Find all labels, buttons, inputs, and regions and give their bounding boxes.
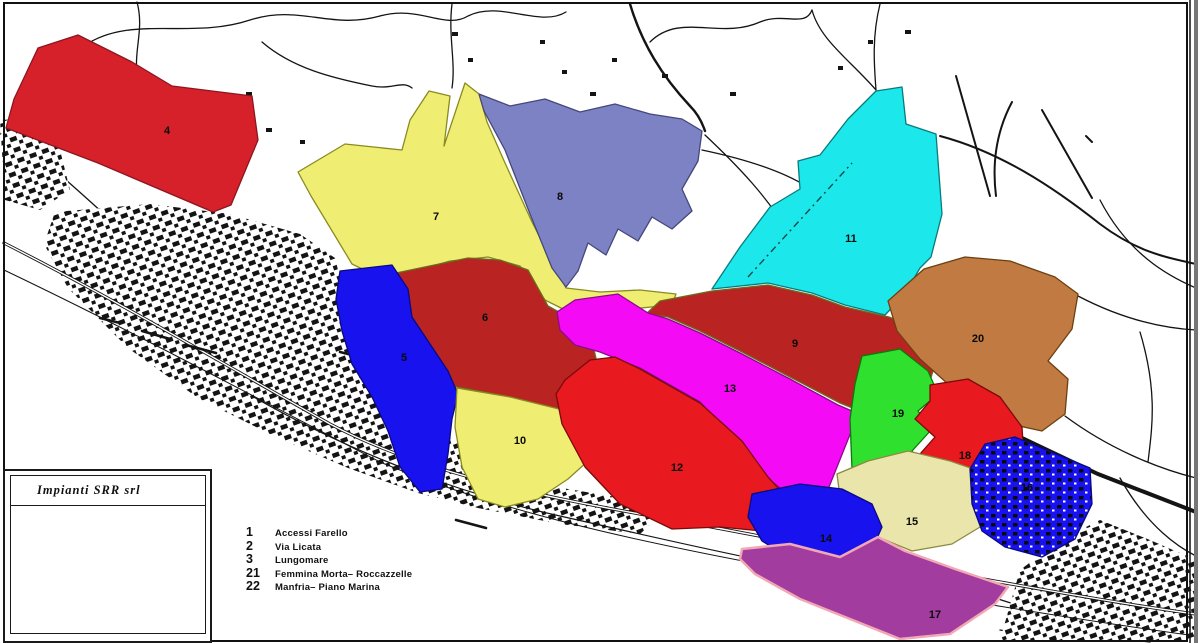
legend-item-number: 3 [246,552,263,566]
legend-title: Impianti SRR srl [11,476,205,506]
roads-top-right [956,76,1092,198]
zone-9-number: 9 [792,338,798,350]
zone-17-number: 17 [929,609,941,621]
zone-16-area [970,437,1092,557]
zone-12-number: 12 [671,462,683,474]
roads-right-of-brown [1065,200,1196,478]
zone-11-area [712,87,942,315]
zone-8-number: 8 [557,191,563,203]
legend-item-label: Femmina Morta– Roccazzelle [275,569,412,580]
zone-4-number: 4 [164,125,171,137]
legend-item-number: 2 [246,539,263,553]
legend-item-label: Lungomare [275,555,329,566]
zone-6-number: 6 [482,312,488,324]
legend-item-1: 1Accessi Farello [246,525,412,539]
road-vertical-mid [451,4,453,88]
legend-item-label: Accessi Farello [275,528,348,539]
legend-item-number: 22 [246,579,263,593]
zone-7-number: 7 [433,211,439,223]
contour-top [84,11,566,46]
road-to-cyan [812,4,880,90]
legend-item-2: 2Via Licata [246,539,412,553]
zone-16: 16 [970,437,1092,557]
legend-item-number: 21 [246,566,263,580]
legend-item-label: Manfria– Piano Marina [275,582,380,593]
zone-17-area [740,537,1008,639]
zone-18-number: 18 [959,450,971,462]
legend-item-label: Via Licata [275,542,321,553]
zone-11-number: 11 [845,233,857,245]
legend-item-22: 22Manfria– Piano Marina [246,579,412,593]
zone-17: 17 [740,537,1008,639]
legend-inner-frame: Impianti SRR srl [10,475,206,634]
legend-item-21: 21Femmina Morta– Roccazzelle [246,566,412,580]
zone-19-number: 19 [892,408,904,420]
zone-20-number: 20 [972,333,984,345]
road-above-yellow [262,42,412,88]
legend-list: 1Accessi Farello2Via Licata3Lungomare21F… [246,525,412,593]
legend-item-3: 3Lungomare [246,552,412,566]
zone-14-number: 14 [820,533,833,545]
legend-item-number: 1 [246,525,263,539]
contour-top-right [650,10,812,42]
legend-box: Impianti SRR srl [3,469,212,643]
zone-5-number: 5 [401,352,407,364]
zone-15-number: 15 [906,516,918,528]
zone-11: 11 [712,87,942,315]
zone-16-number: 16 [1021,482,1033,494]
zone-13-number: 13 [724,383,736,395]
zoning-map-page: 7811465920131012191815161417 Impianti SR… [0,0,1200,643]
zone-10-number: 10 [514,435,526,447]
